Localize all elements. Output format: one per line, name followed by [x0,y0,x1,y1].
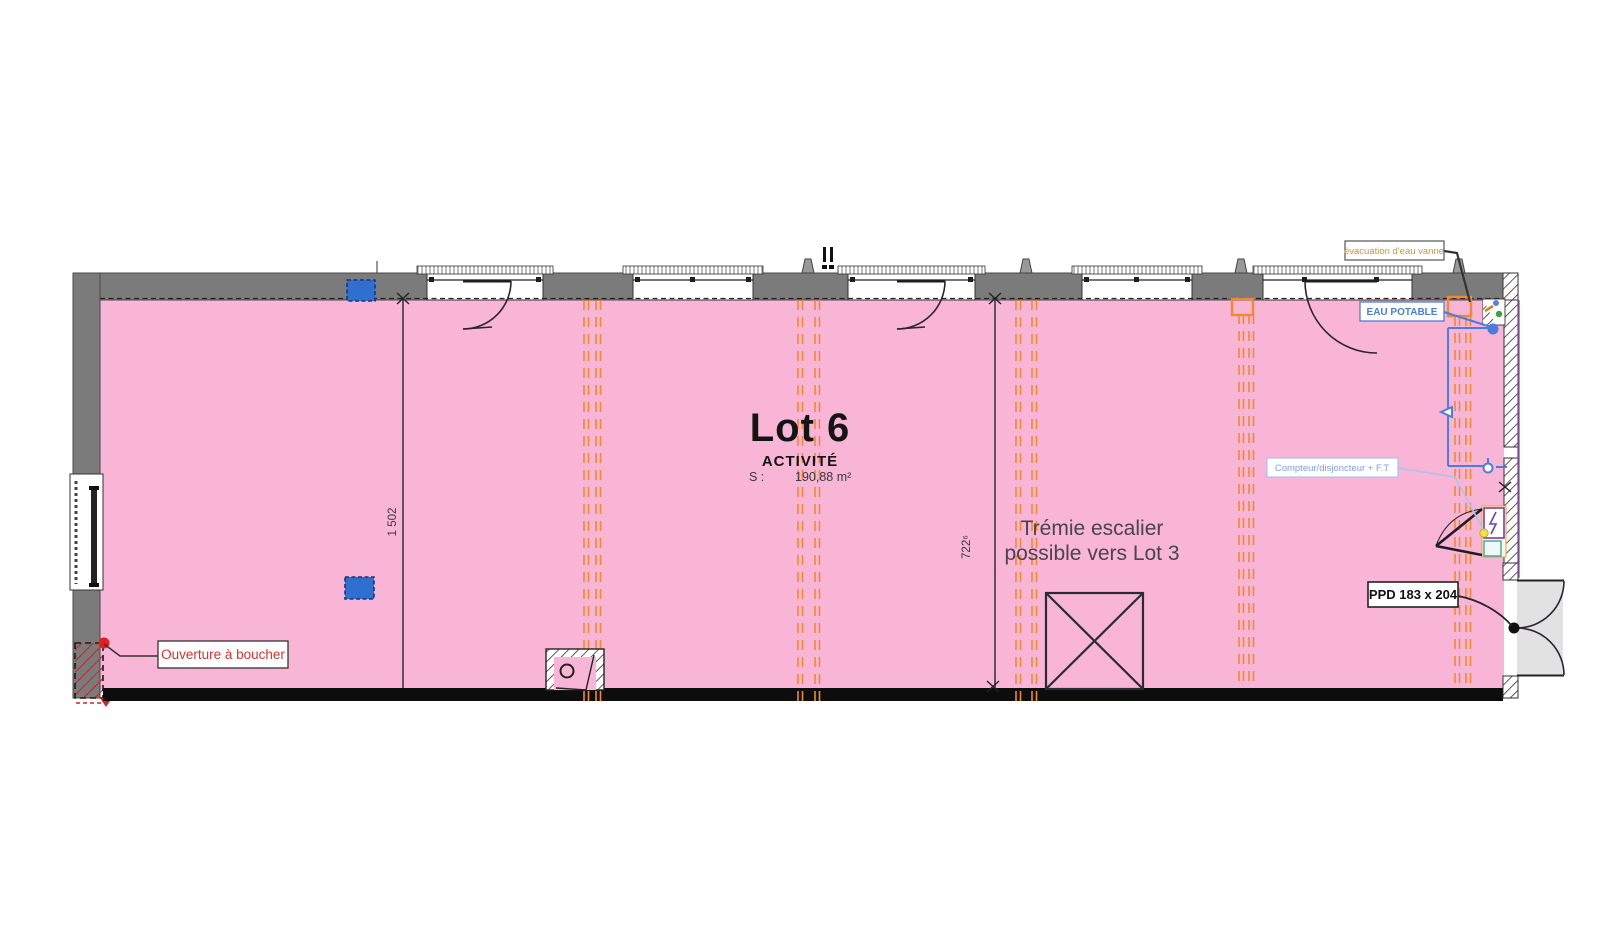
label-ppd: PPD 183 x 204 [1368,582,1458,607]
window-sill [417,266,553,274]
blue-fixture [345,577,374,599]
label-compteur-text: Compteur/disjoncteur + F.T [1275,463,1390,474]
window-sill [623,266,763,274]
water-tap-dot [1489,325,1498,334]
dim-depth: 722⁶ [961,535,973,559]
label-ouverture-text: Ouverture à boucher [161,647,285,662]
label-evacuation: évacuation d'eau vanne [1344,241,1444,260]
surface-label: S : [749,470,764,484]
floor-plan-canvas: évacuation d'eau vanne EAU POTABLE Compt… [0,0,1600,948]
window-sill [1253,266,1422,274]
tap-pin-symbol [1484,464,1493,473]
blue-fixture [347,280,375,301]
label-ouverture: Ouverture à boucher [158,641,288,668]
left-window [70,474,103,590]
label-eau-potable: EAU POTABLE [1360,302,1444,321]
label-evacuation-text: évacuation d'eau vanne [1344,246,1444,257]
ppd-double-door [1509,580,1565,676]
drain-niche [546,649,604,690]
lot-category: ACTIVITÉ [762,453,838,470]
tremie-line2: possible vers Lot 3 [1004,542,1179,565]
top-wall [73,247,1505,300]
dim-width: 1 502 [387,508,399,537]
label-compteur: Compteur/disjoncteur + F.T [1267,458,1398,477]
floor-plan-drawing: évacuation d'eau vanne EAU POTABLE Compt… [0,0,1600,948]
water-point-dot [1493,300,1499,306]
vent-pipe-symbol [822,247,834,269]
valve-dot [1495,310,1502,317]
lot-title: Lot 6 [750,406,851,450]
label-eau-potable-text: EAU POTABLE [1367,307,1438,318]
label-ppd-text: PPD 183 x 204 [1369,587,1458,602]
surface-value: 190,88 m² [795,470,851,484]
tremie-line1: Trémie escalier [1021,517,1164,540]
window-sill [1072,266,1202,274]
window-sill [838,266,985,274]
water-entry-corner [1483,299,1505,325]
